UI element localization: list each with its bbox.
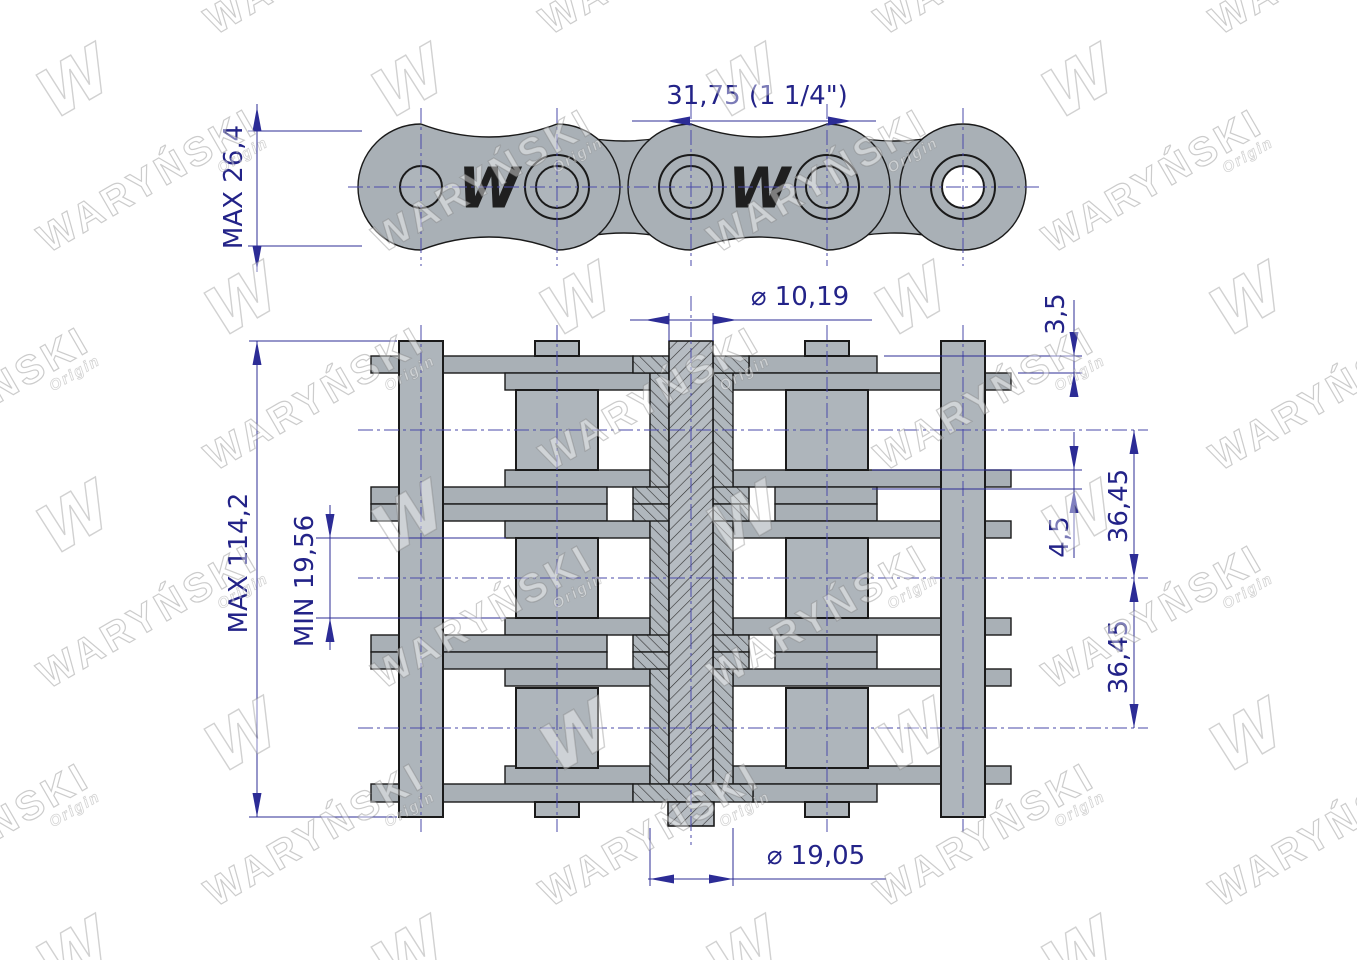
- dim-3645b-label: 36,45: [1104, 620, 1134, 694]
- dim-3645a-label: 36,45: [1104, 469, 1134, 543]
- plate-logo-w: W: [728, 157, 793, 222]
- chain-section-view: [358, 296, 1148, 845]
- dim-pin-diameter: ⌀ 10,19: [630, 282, 872, 341]
- dim-transverse-pitch: 36,45 36,45: [1104, 430, 1139, 728]
- dim-pitch-label: 31,75 (1 1/4"): [666, 81, 848, 111]
- dim-roller-diameter-label: ⌀ 19,05: [767, 841, 865, 871]
- dim-plate-height: MAX 26,4: [219, 104, 362, 272]
- dim-35-label: 3,5: [1041, 293, 1071, 334]
- dim-overall-width-label: MAX 114,2: [224, 493, 254, 634]
- dim-45-label: 4,5: [1045, 516, 1075, 557]
- dim-roller-diameter: ⌀ 19,05: [648, 828, 886, 886]
- plate-logo-w: W: [458, 157, 523, 222]
- dim-plate-height-label: MAX 26,4: [219, 125, 249, 249]
- dim-min-width-label: MIN 19,56: [290, 515, 320, 647]
- chain-technical-drawing: W W: [0, 0, 1357, 960]
- technical-drawing-page: W W: [0, 0, 1357, 960]
- chain-side-view: W W: [348, 104, 1042, 266]
- dim-pitch: 31,75 (1 1/4"): [632, 81, 876, 126]
- dim-pin-diameter-label: ⌀ 10,19: [751, 282, 849, 312]
